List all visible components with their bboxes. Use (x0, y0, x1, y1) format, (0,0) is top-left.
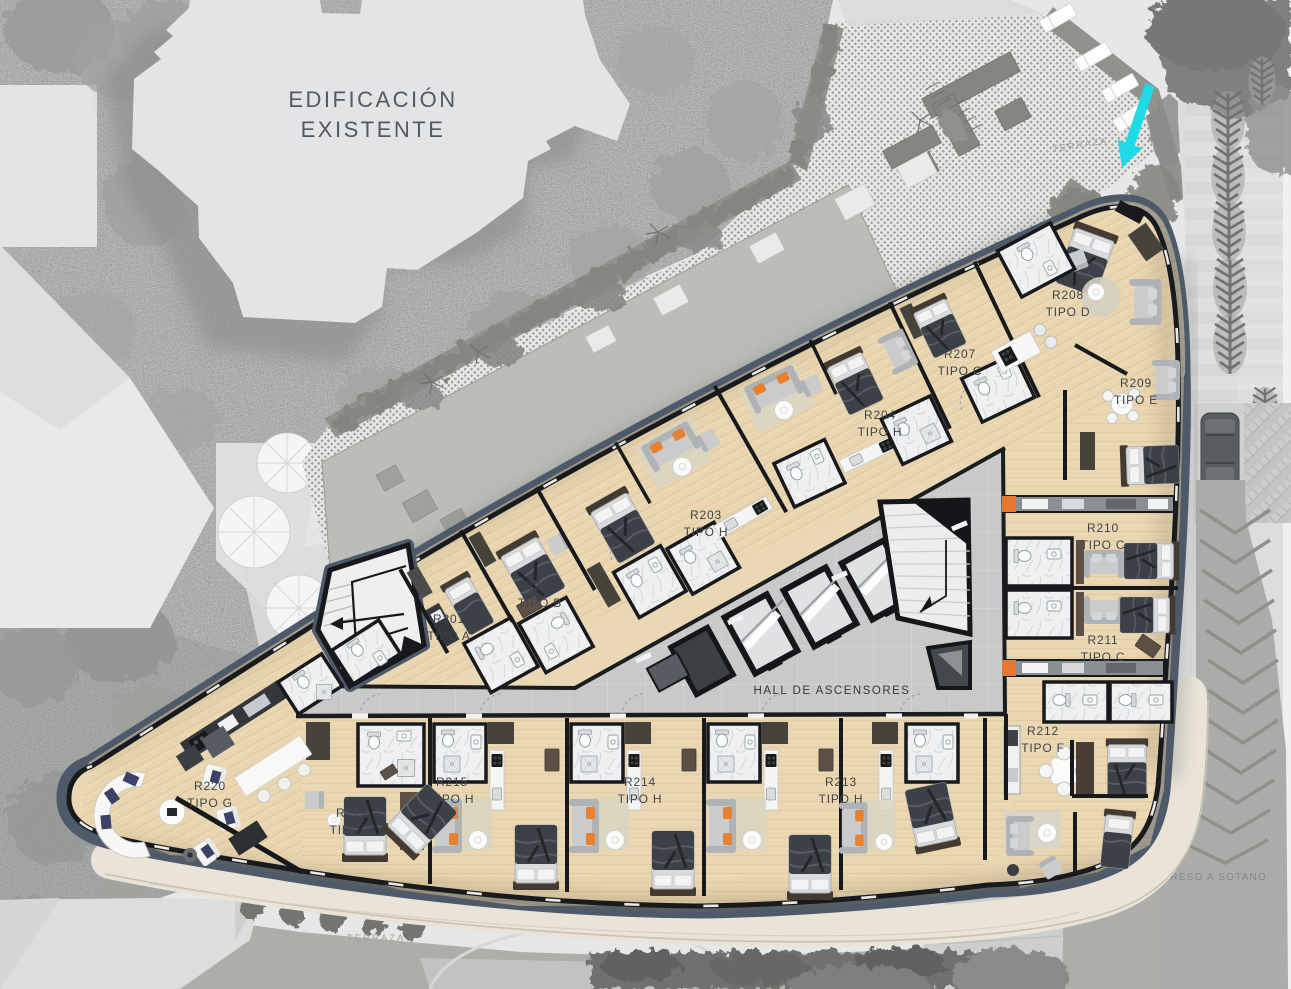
svg-text:R201: R201 (433, 612, 465, 626)
svg-text:R209: R209 (1120, 376, 1152, 390)
svg-text:TIPO E: TIPO E (1114, 393, 1158, 407)
svg-text:R210: R210 (1087, 521, 1119, 535)
svg-text:TIPO G: TIPO G (187, 796, 232, 810)
svg-text:TIPO H: TIPO H (430, 792, 475, 806)
svg-text:R214: R214 (624, 775, 656, 789)
svg-text:TIPO D: TIPO D (1046, 305, 1091, 319)
svg-text:EXISTENTE: EXISTENTE (301, 117, 446, 142)
svg-text:EDIFICACIÓN: EDIFICACIÓN (288, 87, 457, 112)
svg-text:TIPO C: TIPO C (1081, 538, 1126, 552)
svg-text:R203: R203 (690, 508, 722, 522)
svg-text:R211: R211 (1088, 633, 1119, 647)
svg-text:R212: R212 (1027, 724, 1059, 738)
svg-text:TIPO F: TIPO F (1021, 741, 1064, 755)
svg-text:R213: R213 (825, 775, 857, 789)
svg-text:TIPO C: TIPO C (938, 364, 983, 378)
svg-text:R208: R208 (1052, 288, 1084, 302)
svg-text:TIPO C: TIPO C (1081, 650, 1126, 664)
svg-text:R207: R207 (944, 347, 976, 361)
svg-text:TERRAZA: TERRAZA (347, 933, 405, 944)
svg-text:R202: R202 (524, 579, 556, 593)
svg-text:TIPO H: TIPO H (684, 525, 729, 539)
svg-text:TIPO H: TIPO H (858, 425, 903, 439)
svg-text:TIPO A: TIPO A (427, 629, 470, 643)
svg-text:HALL DE ASCENSORES: HALL DE ASCENSORES (754, 685, 911, 697)
svg-text:R220: R220 (194, 779, 226, 793)
svg-text:TIPO H: TIPO H (618, 792, 663, 806)
svg-text:TIPO H: TIPO H (819, 792, 864, 806)
svg-text:R215: R215 (436, 775, 468, 789)
svg-text:TIPO B: TIPO B (518, 596, 562, 610)
svg-text:R219: R219 (336, 806, 368, 820)
svg-text:TIPO C: TIPO C (330, 823, 375, 837)
svg-text:R204: R204 (864, 408, 896, 422)
